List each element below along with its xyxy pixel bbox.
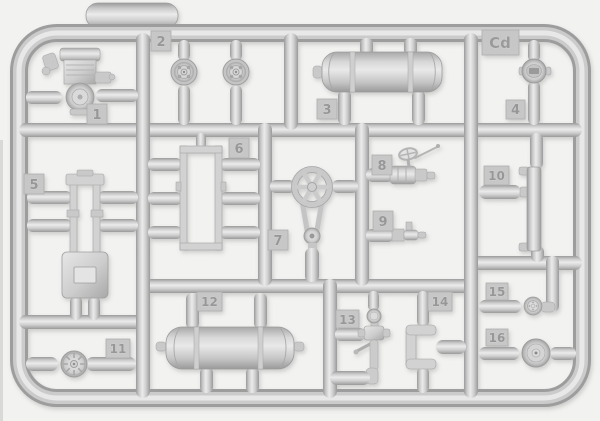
rod-tip [436, 144, 440, 148]
sprue-gate [26, 357, 58, 371]
sprue-gate [178, 85, 190, 125]
sprue-gate [330, 371, 370, 385]
compressor-fitting [109, 74, 115, 80]
bracket-arm [406, 325, 436, 335]
frame-notch [77, 170, 93, 176]
bracket-plate [527, 167, 541, 251]
part-tag-15: 15 [486, 283, 508, 300]
lever-ball [354, 350, 359, 355]
sprue-gate [550, 347, 576, 360]
sprue-code: Cd [489, 34, 511, 52]
valve-nub [358, 329, 365, 337]
tag-number: 1 [92, 108, 101, 123]
part-tag-14: 14 [428, 292, 452, 311]
frame-rail [93, 178, 100, 258]
cap-slot [529, 68, 539, 74]
valve-body [390, 166, 416, 184]
part-tag-4: 4 [506, 100, 525, 119]
tank-band [258, 327, 263, 369]
sprue-gate [479, 300, 521, 313]
part-tag-2: 2 [151, 31, 171, 51]
tank-band [350, 52, 355, 92]
tag-number: 5 [29, 178, 38, 193]
fitting-tip [418, 232, 426, 238]
sprue-runner [19, 315, 144, 329]
valve-body [364, 326, 384, 340]
part-tag-5: 5 [24, 174, 44, 194]
sprue-gate [96, 89, 138, 102]
sprue-gate [230, 85, 242, 125]
frame-clamp [91, 210, 103, 217]
crankcase-hole [78, 95, 83, 100]
hub-hole [535, 352, 538, 355]
tag-number: 13 [339, 313, 356, 327]
frame-rail [180, 146, 187, 250]
flywheel-hub [308, 183, 317, 192]
sprue-code-tag: Cd [482, 30, 519, 55]
bracket-arm [406, 359, 436, 369]
part-tag-8: 8 [372, 155, 392, 175]
tag-number: 9 [378, 215, 387, 230]
tag-number: 7 [273, 234, 282, 249]
tag-number: 14 [432, 295, 449, 309]
sprue-gate [230, 40, 242, 61]
valve-pipe [370, 340, 378, 370]
tank-nub [294, 342, 304, 351]
compressor-accessory [42, 67, 50, 75]
sprue-gate [417, 291, 429, 327]
sprue-runner [464, 33, 478, 398]
part-tag-7: 7 [268, 230, 288, 250]
frame-tab [176, 182, 181, 191]
sprue-gate [541, 302, 555, 312]
sprue-illustration: 1 2 3 Cd 4 5 6 [0, 0, 600, 421]
sprue-runner [284, 33, 298, 130]
sprue-gate [88, 296, 100, 320]
sprue-gate [528, 81, 540, 125]
part-tag-12: 12 [197, 292, 222, 311]
sprue-runner [19, 123, 582, 137]
tank-nub [313, 66, 322, 78]
hub-hole [73, 363, 76, 366]
sprue-runner [136, 33, 150, 398]
sprue-runner [258, 123, 272, 286]
pulley-hole [310, 234, 315, 239]
tank-band [408, 52, 413, 92]
sprue-gate [148, 226, 182, 239]
frame-crossbar [180, 243, 222, 250]
frame-clamp [67, 210, 79, 217]
compressor-fitting [95, 72, 111, 83]
part-tag-13: 13 [336, 310, 359, 328]
tag-number: 8 [377, 159, 386, 174]
part-tag-3: 3 [317, 99, 337, 119]
frame-rail [70, 178, 77, 258]
sprue-gate [27, 219, 72, 232]
part-tag-11: 11 [106, 339, 130, 358]
sprue-runner [355, 123, 369, 286]
sprue-gate [417, 367, 429, 393]
fitting-cylinder [404, 230, 418, 240]
sprue-gate [26, 91, 62, 104]
sprue-gate [86, 357, 136, 371]
sprue-gate [98, 219, 138, 232]
part-tag-6: 6 [229, 138, 249, 158]
compressor-head [60, 48, 100, 61]
sprue-gate [530, 133, 543, 169]
sprue-gate [305, 248, 319, 282]
hub-hole [235, 71, 237, 73]
valve-nub [383, 329, 390, 337]
sprue-gate [436, 340, 466, 354]
part-tag-16: 16 [486, 329, 508, 346]
compressor-block [64, 60, 96, 84]
sprue-gate [70, 296, 82, 320]
tank-band [194, 327, 199, 369]
sprue-gate [479, 185, 521, 199]
frame-crossbar [180, 146, 222, 153]
tag-number: 16 [489, 331, 506, 345]
sprue-photo: 1 2 3 Cd 4 5 6 [0, 0, 600, 421]
box-opening [74, 267, 96, 283]
tag-number: 4 [511, 103, 520, 118]
tag-number: 12 [201, 295, 218, 309]
tag-number: 11 [110, 342, 127, 356]
sprue-gate [338, 90, 351, 125]
fitting-nut [392, 229, 404, 241]
sprue-runner [464, 256, 582, 270]
tag-number: 10 [488, 169, 505, 183]
frame-tab [221, 182, 226, 191]
tank-nub [156, 342, 166, 351]
sprue-gate [98, 191, 138, 204]
part-tag-10: 10 [484, 166, 509, 185]
sprue-gate [178, 40, 190, 61]
photo-edge-shadow [0, 140, 3, 421]
sprue-gate [368, 291, 379, 311]
sprue-gate [148, 192, 182, 205]
part-tag-9: 9 [373, 211, 393, 231]
sprue-gate [220, 158, 260, 171]
sprue-gate [332, 180, 358, 193]
frame-rail [215, 146, 222, 250]
tag-number: 15 [489, 285, 506, 299]
tag-number: 3 [322, 103, 331, 118]
sprue-gate [200, 367, 213, 393]
sprue-gate [412, 90, 425, 125]
valve-reducer [415, 169, 427, 181]
cap-ear [546, 67, 551, 75]
part-tag-1: 1 [87, 104, 107, 124]
tag-number: 2 [156, 35, 165, 50]
tag-number: 6 [234, 142, 243, 157]
fitting-stub [406, 222, 412, 230]
sprue-gate [254, 293, 267, 329]
pulley-hub [531, 304, 535, 308]
sprue-gate [220, 226, 260, 239]
sprue-gate [148, 158, 182, 171]
hub-hole [183, 71, 185, 73]
sprue-gate [479, 347, 519, 360]
tank-body [166, 327, 294, 369]
valve-stem [408, 159, 409, 167]
sprue-gate [220, 192, 260, 205]
valve-tip [427, 172, 435, 179]
gauge-face [370, 312, 378, 320]
tank-body [322, 52, 442, 92]
sprue-gate [246, 367, 259, 393]
